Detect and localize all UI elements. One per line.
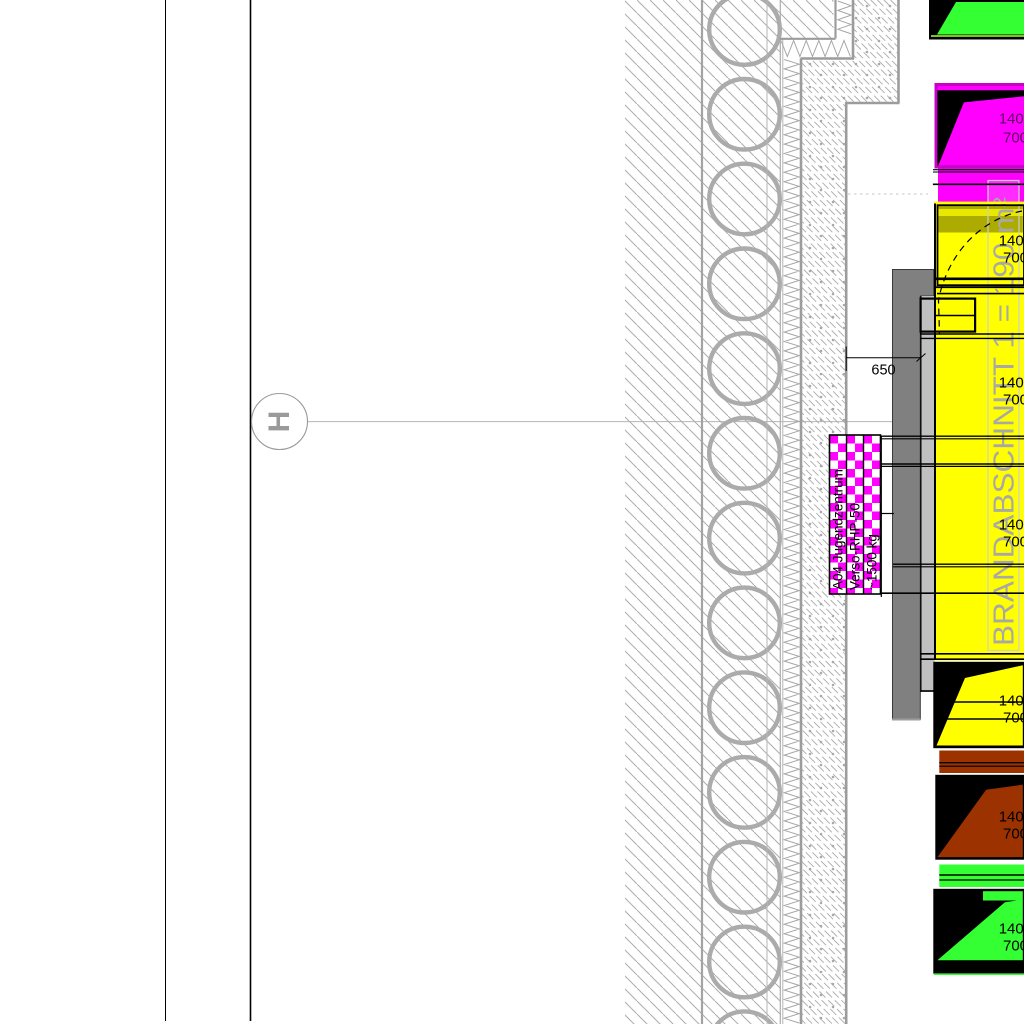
svg-text:1400: 1400 xyxy=(999,111,1024,128)
svg-text:1400: 1400 xyxy=(999,517,1024,534)
svg-text:700: 700 xyxy=(1003,130,1024,147)
svg-text:700: 700 xyxy=(1003,250,1024,267)
svg-text:1400: 1400 xyxy=(999,375,1024,392)
svg-text:1400: 1400 xyxy=(999,921,1024,938)
svg-text:1400: 1400 xyxy=(999,693,1024,710)
svg-text:700: 700 xyxy=(1003,392,1024,409)
svg-text:A04 Jugendzentrum: A04 Jugendzentrum xyxy=(831,469,846,590)
svg-text:1400: 1400 xyxy=(999,809,1024,826)
svg-text:700: 700 xyxy=(1003,938,1024,955)
svg-text:Verso-RHP-50: Verso-RHP-50 xyxy=(848,503,863,590)
svg-text:700: 700 xyxy=(1003,534,1024,551)
svg-text:~1500 kg: ~1500 kg xyxy=(865,534,880,590)
svg-text:650: 650 xyxy=(871,363,895,379)
svg-text:1400: 1400 xyxy=(999,233,1024,250)
svg-text:H: H xyxy=(263,411,296,433)
svg-text:700: 700 xyxy=(1003,710,1024,727)
svg-text:700: 700 xyxy=(1003,826,1024,843)
